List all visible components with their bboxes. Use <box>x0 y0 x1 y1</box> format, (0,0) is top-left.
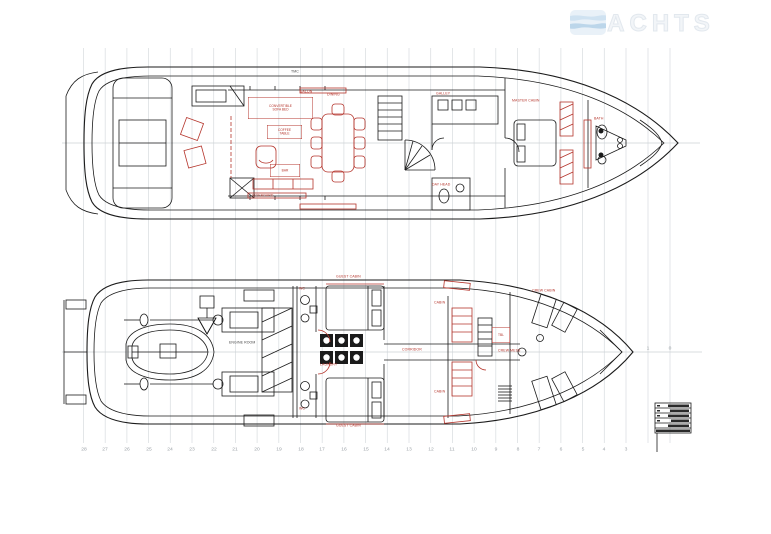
armchair <box>256 146 276 168</box>
day-head <box>432 178 470 210</box>
guest-bed-fwd-bottom <box>326 378 384 422</box>
galley-counters <box>432 96 498 150</box>
brand-watermark: 2YACHTS <box>570 10 715 38</box>
aft-bench <box>253 179 313 189</box>
washer-dryer-stack <box>320 334 363 364</box>
companionway-stairs <box>478 318 492 356</box>
hatched-stairwell <box>262 308 292 392</box>
vanity <box>584 120 591 168</box>
brand-flag-icon <box>570 10 606 35</box>
engine-room <box>124 286 297 426</box>
guest-bed-fwd-top <box>326 286 384 330</box>
lower-deck-plan <box>64 280 633 426</box>
stairs-straight <box>378 96 402 140</box>
bar-cabinet <box>230 178 254 198</box>
yacht-general-arrangement-plan: 2YACHTS 28272625242322212019181716151413… <box>0 0 771 534</box>
midship-cabin-beds <box>448 296 472 418</box>
outboard-gear <box>198 296 216 334</box>
deck-console <box>192 86 244 106</box>
title-block-legend <box>655 403 691 452</box>
plan-drawing <box>0 0 771 534</box>
engine-starboard <box>124 372 274 396</box>
aft-sunpad <box>113 78 172 208</box>
